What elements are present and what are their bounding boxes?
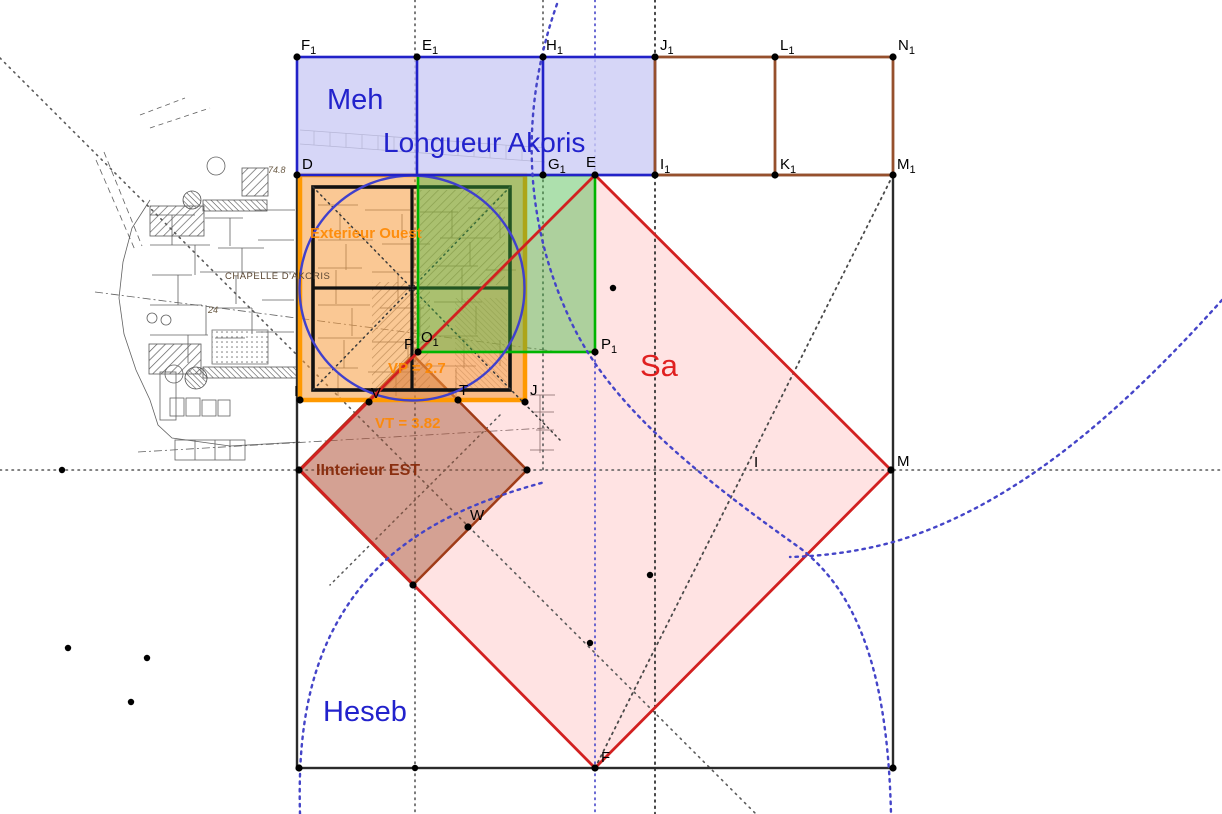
point-label-L1: L1 bbox=[780, 38, 794, 57]
point-label-D: D bbox=[302, 157, 313, 172]
point-label-F: F bbox=[601, 750, 610, 765]
label-24: 24 bbox=[208, 306, 218, 315]
label-heseb: Heseb bbox=[323, 698, 407, 727]
point-label-M1: M1 bbox=[897, 157, 916, 176]
point-label-G1: G1 bbox=[548, 157, 566, 176]
label-longueur-akoris: Longueur Akoris bbox=[383, 129, 585, 157]
point-label-P1: P1 bbox=[601, 337, 617, 356]
point-label-V: V bbox=[371, 386, 381, 401]
point-label-T: T bbox=[459, 383, 468, 398]
label-interieur-est: IInterieur EST bbox=[316, 463, 420, 479]
point-label-E1: E1 bbox=[422, 38, 438, 57]
label-sa: Sa bbox=[640, 350, 678, 381]
point-label-I: I bbox=[294, 384, 298, 399]
point-label-K1: K1 bbox=[780, 157, 796, 176]
label-exterieur-ouest: Exterieur Ouest bbox=[310, 226, 422, 241]
point-label-M: M bbox=[897, 454, 910, 469]
point-label-H1: H1 bbox=[546, 38, 563, 57]
label-vt-measure: VT = 3.82 bbox=[375, 416, 440, 431]
label-meh: Meh bbox=[327, 86, 383, 115]
point-label-E: E bbox=[586, 155, 596, 170]
point-label-N1: N1 bbox=[898, 38, 915, 57]
point-label-I1: I1 bbox=[660, 157, 670, 176]
brown-squares[interactable] bbox=[655, 57, 893, 175]
label-chapelle: CHAPELLE D'AKORIS bbox=[225, 272, 330, 282]
point-label-P: P bbox=[404, 337, 414, 352]
construction-svg bbox=[0, 0, 1222, 814]
point-label-F1: F1 bbox=[301, 38, 316, 57]
point-label-I-line: I bbox=[754, 455, 758, 470]
label-vp-measure: VP = 2.7 bbox=[388, 361, 446, 376]
geometry-canvas[interactable]: Meh Longueur Akoris Sa Heseb Exterieur O… bbox=[0, 0, 1222, 814]
point-label-J: J bbox=[530, 383, 538, 398]
point-label-O1: O1 bbox=[421, 330, 439, 349]
label-748: 74.8 bbox=[268, 166, 286, 175]
point-label-J1: J1 bbox=[660, 38, 674, 57]
point-label-W: W bbox=[470, 508, 484, 523]
